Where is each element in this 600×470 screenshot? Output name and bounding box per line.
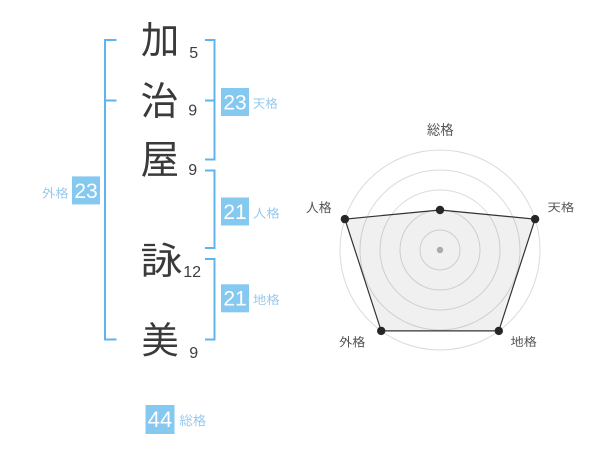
svg-text:21: 21 bbox=[223, 201, 246, 224]
svg-text:12: 12 bbox=[183, 264, 201, 281]
svg-text:23: 23 bbox=[74, 180, 97, 203]
svg-text:23: 23 bbox=[223, 91, 246, 114]
svg-text:9: 9 bbox=[188, 102, 197, 119]
svg-text:9: 9 bbox=[188, 162, 197, 179]
svg-text:21: 21 bbox=[223, 288, 246, 311]
svg-text:44: 44 bbox=[148, 407, 172, 432]
svg-text:9: 9 bbox=[189, 345, 198, 362]
svg-text:5: 5 bbox=[189, 45, 198, 62]
